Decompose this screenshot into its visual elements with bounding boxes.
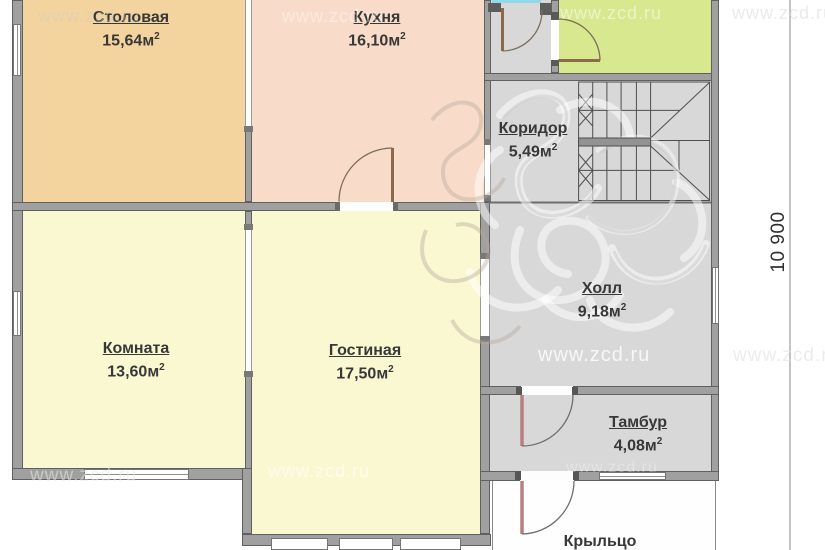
svg-text:10 900: 10 900 [768, 211, 789, 272]
